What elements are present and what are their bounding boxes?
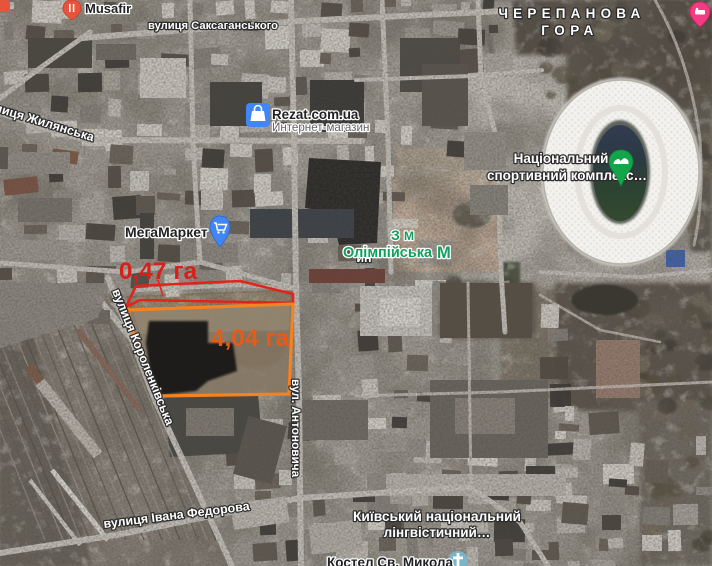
- svg-text:МегаМаркет: МегаМаркет: [125, 224, 208, 240]
- svg-text:Костел Св. Микола: Костел Св. Микола: [327, 555, 453, 566]
- svg-text:Rezat.com.ua: Rezat.com.ua: [272, 107, 359, 122]
- svg-text:М: М: [437, 244, 451, 262]
- svg-text:З: З: [391, 227, 400, 243]
- svg-text:ГОРА: ГОРА: [541, 23, 599, 38]
- svg-text:вул. Антоновича: вул. Антоновича: [289, 379, 303, 478]
- svg-text:Интернет-магазин: Интернет-магазин: [272, 121, 369, 134]
- svg-text:М: М: [404, 229, 414, 243]
- svg-text:Київський національний: Київський національний: [353, 509, 521, 524]
- svg-text:Національний: Національний: [514, 151, 609, 166]
- svg-text:лінгвістичний…: лінгвістичний…: [384, 525, 491, 540]
- svg-text:ЧЕРЕПАНОВА: ЧЕРЕПАНОВА: [498, 6, 645, 21]
- svg-text:4,04 га: 4,04 га: [211, 325, 290, 352]
- svg-text:0,47 га: 0,47 га: [119, 258, 198, 285]
- svg-text:вулиця Саксаганського: вулиця Саксаганського: [148, 20, 278, 32]
- svg-text:Олімпійська: Олімпійська: [343, 245, 433, 261]
- svg-text:Musafir: Musafir: [85, 1, 131, 16]
